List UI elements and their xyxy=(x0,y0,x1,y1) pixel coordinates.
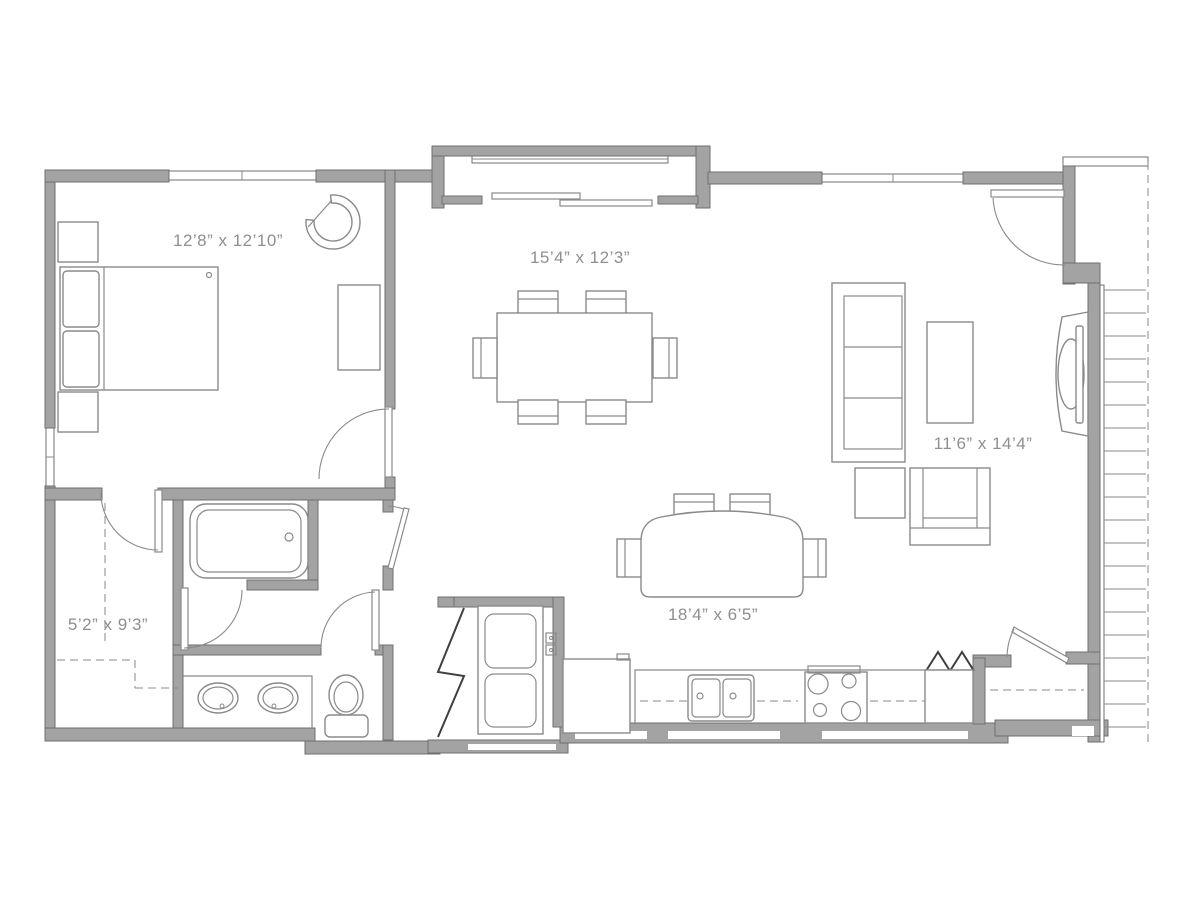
kitchen-wall-slot xyxy=(822,731,968,739)
wall-top-living xyxy=(963,172,1065,184)
linen-door-leaf xyxy=(388,508,409,569)
breakfast-chair xyxy=(617,539,643,577)
walk-in-closet-door-leaf xyxy=(155,490,162,552)
dining-dimension-label: 15’4” x 12’3” xyxy=(530,248,630,267)
vanity-door-leaf xyxy=(372,590,379,650)
sliding-door-panel xyxy=(560,200,652,206)
closet-wall-notch xyxy=(1072,726,1094,736)
nightstand xyxy=(58,392,98,432)
sliding-door-panel xyxy=(492,193,580,199)
breakfast-table xyxy=(641,511,803,597)
kitchen-wall-slot xyxy=(668,731,780,739)
linen-right-stub-bottom xyxy=(383,566,393,590)
dresser xyxy=(338,285,380,370)
control-knob xyxy=(550,637,553,640)
bay-right-return xyxy=(658,196,698,204)
entry-closet-left-wall xyxy=(973,658,985,724)
tub-chair-seat-line xyxy=(308,200,332,227)
bedroom-dimension-label: 12’8” x 12’10” xyxy=(173,231,283,250)
bay-top-wall xyxy=(432,146,704,156)
bath-top-wall-a xyxy=(45,488,102,500)
pantry-bifold-door xyxy=(926,652,950,671)
tub-chair xyxy=(306,195,360,249)
wall-left-lower xyxy=(45,486,55,740)
wall-left-upper xyxy=(45,170,55,428)
laundry-top-left-stub xyxy=(438,597,454,607)
entry-step-wall xyxy=(1063,263,1100,283)
walk-in-closet-dimension-label: 5’2” x 9’3” xyxy=(68,615,148,634)
living-dimension-label: 11’6” x 14’4” xyxy=(934,434,1033,453)
vanity-door-swing xyxy=(321,592,375,648)
armchair xyxy=(910,468,990,545)
entry-door-swing xyxy=(993,198,1065,265)
pantry-bifold-door xyxy=(950,652,974,671)
living-furniture xyxy=(832,283,1088,545)
wall-bottom-mid xyxy=(305,741,440,754)
refrigerator xyxy=(563,659,630,733)
tub-room-door-leaf xyxy=(181,588,188,650)
dining-chair xyxy=(586,291,626,315)
tub-bottom-wall xyxy=(247,580,318,590)
breakfast-chair xyxy=(800,539,826,577)
toilet-right-wall xyxy=(383,645,393,740)
staircase xyxy=(1100,162,1148,742)
stair-stringer xyxy=(1100,285,1104,742)
entry-door-leaf xyxy=(991,190,1064,197)
dining-chair xyxy=(586,400,626,424)
stove xyxy=(805,672,867,723)
kitchen-fixtures xyxy=(478,606,1084,734)
dining-chair xyxy=(473,338,497,378)
bed-pillow xyxy=(63,331,99,387)
laundry-wall-slot xyxy=(468,744,556,750)
wall-top-bedroom-right xyxy=(316,170,436,182)
bedroom-right-wall xyxy=(385,170,395,409)
dining-chair xyxy=(653,338,677,378)
dining-chair xyxy=(518,400,558,424)
bay-left-return xyxy=(442,196,482,204)
washer-dryer-stack xyxy=(478,606,543,734)
breakfast-table-set xyxy=(617,494,826,597)
toilet-tank xyxy=(325,715,368,737)
laundry-bifold-door xyxy=(438,608,464,737)
side-table xyxy=(855,468,905,518)
control-knob xyxy=(550,649,553,652)
walk-in-closet-door-swing xyxy=(101,493,158,550)
nightstand xyxy=(58,222,98,262)
bedroom-door-leaf xyxy=(385,407,392,477)
bathroom-fixtures xyxy=(183,504,368,737)
tub-linen-divider xyxy=(308,500,318,582)
entry-closet-right-jamb xyxy=(1066,652,1100,664)
wall-top-bedroom-left xyxy=(45,170,169,182)
sofa xyxy=(832,283,905,462)
coffee-table xyxy=(927,322,973,423)
dining-chair xyxy=(518,291,558,315)
floor-plan: 12’8” x 12’10” 15’4” x 12’3” 11’6” x 14’… xyxy=(0,0,1200,900)
stair-treads xyxy=(1104,290,1146,727)
dining-furniture xyxy=(473,291,677,424)
pantry-cabinet xyxy=(925,670,973,723)
stair-party-wall xyxy=(1088,283,1100,742)
coat-closet-door-leaf xyxy=(1012,627,1069,663)
kitchen-dimension-label: 18’4” x 6’5” xyxy=(668,605,758,624)
dining-table xyxy=(497,313,652,402)
wall-bottom-left xyxy=(45,728,315,741)
bed-pillow xyxy=(63,271,99,327)
bath-top-wall-b xyxy=(158,488,395,500)
vestibule-band xyxy=(1063,157,1148,166)
tub-room-door-swing xyxy=(184,590,242,648)
niche-bar xyxy=(1076,326,1083,423)
wall-top-dining xyxy=(708,172,822,184)
bedroom-door-swing xyxy=(319,409,389,479)
